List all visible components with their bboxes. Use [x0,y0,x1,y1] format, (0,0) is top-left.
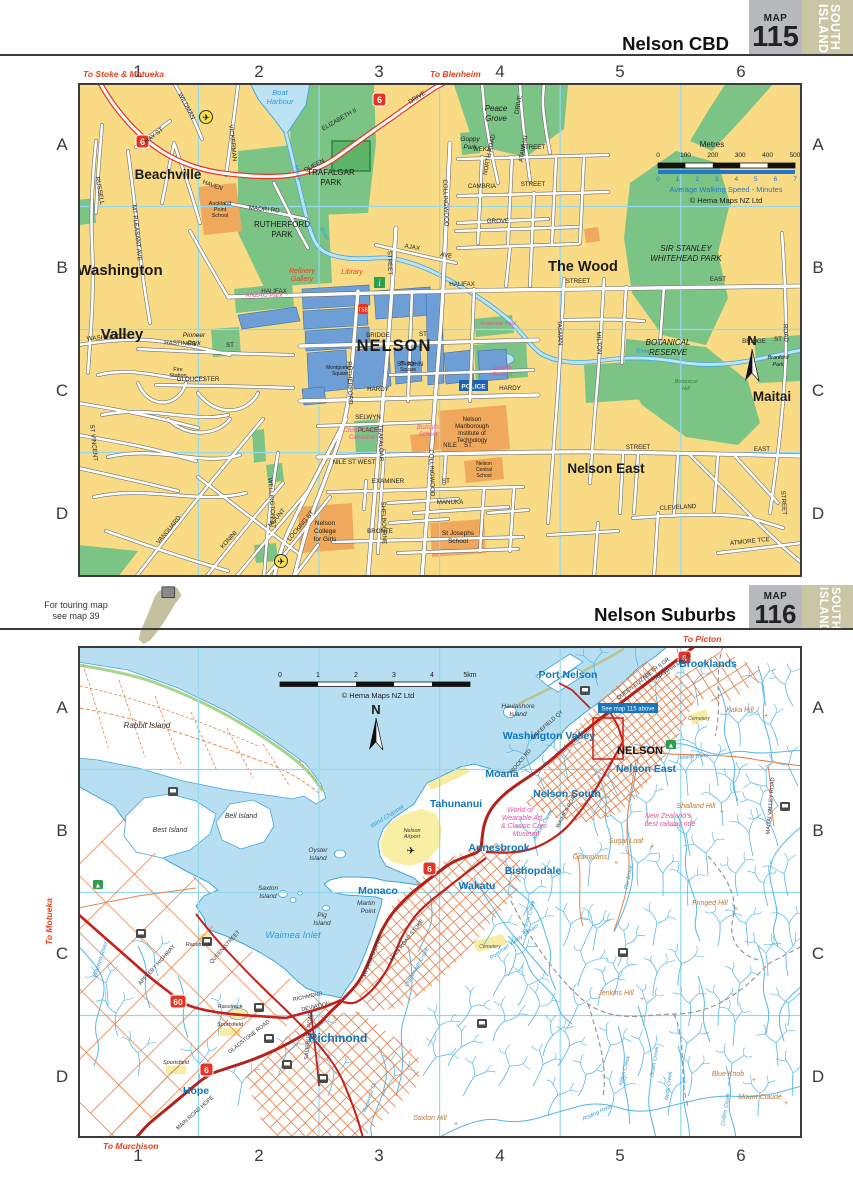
svg-text:Sportsfield: Sportsfield [217,1022,244,1028]
svg-text:PARK: PARK [271,230,293,239]
svg-text:MILTON: MILTON [595,331,603,354]
svg-text:Library: Library [341,269,363,276]
svg-text:St Josephs: St Josephs [442,530,475,537]
svg-text:1: 1 [676,176,680,183]
svg-text:Peace: Peace [485,104,508,113]
svg-text:Station: Station [169,373,186,379]
svg-text:✈: ✈ [202,113,210,123]
svg-text:RESERVE: RESERVE [649,348,688,357]
svg-text:EAST: EAST [754,446,770,453]
svg-text:Goppy: Goppy [460,136,480,143]
svg-text:NELSON: NELSON [617,745,663,757]
svg-text:Nelson: Nelson [463,417,482,423]
svg-text:Grove: Grove [485,114,507,123]
svg-text:Waimea Inlet: Waimea Inlet [265,930,321,941]
svg-text:Gardens: Gardens [491,372,512,378]
svg-text:Cemetery: Cemetery [688,716,710,722]
svg-text:Island: Island [309,855,327,862]
svg-text:Nelson East: Nelson East [616,763,677,775]
svg-text:Square: Square [332,371,348,377]
svg-text:6: 6 [377,95,382,105]
svg-text:Bishop's: Bishop's [417,425,440,431]
svg-text:TASMAN: TASMAN [556,320,564,346]
svg-text:Maitai: Maitai [753,389,791,404]
svg-text:Nelson: Nelson [315,520,336,527]
svg-text:ANZAC Park: ANZAC Park [244,292,283,299]
svg-text:▲: ▲ [95,883,102,890]
svg-text:Washington: Washington [78,262,163,279]
svg-text:NILE ST WEST: NILE ST WEST [333,459,376,466]
svg-text:N: N [747,333,756,348]
svg-text:School: School [476,473,491,479]
svg-text:College: College [314,528,336,535]
svg-text:Oyster: Oyster [308,847,328,854]
svg-text:Wearable Art: Wearable Art [502,815,544,822]
svg-text:7: 7 [793,176,797,183]
svg-text:4: 4 [734,176,738,183]
svg-text:World of: World of [507,807,534,814]
svg-text:Nelson East: Nelson East [567,461,645,476]
svg-text:Airport: Airport [403,834,421,840]
svg-text:Jenkins Hill: Jenkins Hill [597,990,634,997]
svg-text:BRIDGE: BRIDGE [366,332,390,339]
svg-text:Square: Square [400,367,416,373]
svg-text:Riverside Pool: Riverside Pool [480,321,516,327]
svg-text:RUTHERFORD: RUTHERFORD [254,220,310,229]
svg-text:HALIFAX: HALIFAX [449,281,474,288]
svg-text:5: 5 [754,176,758,183]
svg-text:Pioneer: Pioneer [183,332,206,339]
svg-text:STREET: STREET [566,278,591,285]
svg-text:Kaka Hill: Kaka Hill [726,707,754,714]
svg-text:ST: ST [442,478,450,485]
svg-text:+: + [614,860,618,867]
svg-text:+: + [734,906,738,913]
svg-text:Institute of: Institute of [458,431,486,437]
svg-text:N: N [371,702,380,717]
svg-text:Richmond: Richmond [309,1031,368,1045]
svg-text:+: + [650,844,654,851]
svg-text:Marlborough: Marlborough [455,424,489,430]
svg-text:2: 2 [695,176,699,183]
svg-text:Mount Claude: Mount Claude [738,1094,782,1101]
svg-text:Annesbrook: Annesbrook [468,842,529,854]
svg-text:200: 200 [707,152,718,159]
svg-text:Racetrack: Racetrack [218,1004,243,1010]
svg-text:▲: ▲ [668,743,675,750]
svg-text:Museum: Museum [513,831,540,838]
svg-text:MANUKA: MANUKA [437,499,464,506]
svg-text:0: 0 [656,176,660,183]
svg-text:+: + [640,996,644,1003]
svg-text:EAST: EAST [710,276,726,283]
svg-text:5km: 5km [463,672,476,679]
svg-text:Blue Knob: Blue Knob [712,1071,744,1078]
svg-text:Branford: Branford [767,355,789,361]
svg-text:Point: Point [361,908,377,915]
svg-text:PARK: PARK [320,178,342,187]
svg-text:3: 3 [392,672,396,679]
svg-text:for Girls: for Girls [314,536,338,543]
svg-text:STREET: STREET [626,444,651,451]
svg-text:Martin: Martin [357,900,375,907]
svg-text:300: 300 [735,152,746,159]
svg-text:Best Island: Best Island [153,827,189,834]
svg-text:School: School [212,213,229,219]
svg-text:TSB: TSB [358,308,368,314]
svg-text:Grampians: Grampians [573,854,608,861]
svg-text:See map 115 above: See map 115 above [601,707,655,713]
svg-text:+: + [752,1077,756,1084]
svg-text:400: 400 [762,152,773,159]
svg-text:POLICE: POLICE [461,384,486,391]
svg-text:ROAD: ROAD [781,324,789,343]
svg-text:500: 500 [790,152,801,159]
svg-text:Island: Island [259,893,277,900]
svg-text:Saxton: Saxton [258,885,279,892]
svg-text:✈: ✈ [277,557,285,567]
svg-text:NELSON: NELSON [357,337,432,355]
svg-text:Gallery: Gallery [291,276,314,283]
svg-text:+: + [764,713,768,720]
svg-text:60: 60 [173,997,183,1007]
svg-text:Wakatu: Wakatu [459,880,496,892]
svg-text:3: 3 [715,176,719,183]
svg-text:✈: ✈ [407,846,415,857]
svg-text:0: 0 [656,152,660,159]
svg-text:STREET: STREET [521,181,546,188]
svg-text:Beachville: Beachville [135,167,202,182]
svg-text:School: School [419,432,438,438]
svg-text:© Hema Maps NZ Ltd: © Hema Maps NZ Ltd [690,196,763,205]
svg-text:+: + [454,1121,458,1128]
svg-text:Racetrack: Racetrack [186,942,211,948]
svg-text:Fringed Hill: Fringed Hill [692,900,728,907]
svg-text:Park: Park [772,362,784,368]
svg-text:Shalland Hill: Shalland Hill [677,803,716,810]
svg-text:BOTANICAL: BOTANICAL [646,338,691,347]
svg-text:Refinery: Refinery [289,268,316,275]
svg-text:Hill: Hill [682,386,690,392]
svg-text:Haulashore: Haulashore [501,703,535,710]
svg-text:Hope: Hope [183,1085,209,1097]
svg-text:CAMBRIA: CAMBRIA [468,183,497,190]
svg-text:SHELBOURNE: SHELBOURNE [379,502,387,545]
svg-text:Bishopdale: Bishopdale [505,865,562,877]
svg-text:best railway ride: best railway ride [645,821,696,828]
svg-text:ST: ST [774,336,782,343]
svg-text:ST: ST [226,342,234,349]
svg-text:Pig: Pig [317,912,327,919]
svg-text:Average Walking Speed - Minute: Average Walking Speed - Minutes [670,185,783,194]
svg-text:6: 6 [204,1065,209,1075]
svg-text:Port Nelson: Port Nelson [539,669,598,681]
svg-text:Monaco: Monaco [358,885,398,897]
svg-text:SELWYN: SELWYN [355,414,381,421]
svg-text:& Classic Cars: & Classic Cars [501,823,547,830]
svg-text:+: + [784,1100,788,1107]
svg-text:Christ Church: Christ Church [344,428,381,434]
svg-text:100: 100 [680,152,691,159]
svg-text:Nelson South: Nelson South [533,788,601,800]
svg-text:Harbour: Harbour [266,97,294,106]
svg-text:GROVE: GROVE [487,218,509,225]
svg-text:The Wood: The Wood [548,259,618,275]
svg-text:© Hema Maps NZ Ltd: © Hema Maps NZ Ltd [342,691,415,700]
svg-text:Washington Valley: Washington Valley [503,730,596,742]
svg-text:Sportsfield: Sportsfield [163,1060,190,1066]
svg-text:ST: ST [419,331,427,338]
svg-text:6: 6 [774,176,778,183]
svg-text:4: 4 [430,672,434,679]
svg-text:HARDY: HARDY [499,385,521,392]
svg-text:School: School [448,538,468,545]
svg-text:0: 0 [278,672,282,679]
svg-text:BRONTE: BRONTE [367,528,393,535]
svg-text:Technology: Technology [457,438,487,444]
svg-text:Queens: Queens [492,365,512,371]
svg-text:Island: Island [509,711,527,718]
svg-text:WHITEHEAD PARK: WHITEHEAD PARK [650,254,722,263]
svg-text:Botanical: Botanical [675,379,698,385]
svg-text:NILE: NILE [443,442,457,449]
svg-text:Tahunanui: Tahunanui [430,798,482,810]
svg-text:Rabbit Island: Rabbit Island [124,721,171,730]
svg-text:HASTINGS: HASTINGS [164,339,196,347]
svg-text:New Zealand's: New Zealand's [645,813,692,820]
svg-text:6: 6 [427,864,432,874]
svg-text:EXAMINER: EXAMINER [372,478,405,485]
svg-text:SIR STANLEY: SIR STANLEY [660,244,712,253]
svg-text:Metres: Metres [700,140,724,149]
svg-text:Bell Island: Bell Island [225,813,258,820]
svg-text:HARDY: HARDY [367,386,389,393]
svg-text:Saxton Hill: Saxton Hill [413,1115,447,1122]
svg-text:STREET: STREET [386,251,394,276]
svg-text:River: River [636,349,651,355]
svg-text:Cemetery: Cemetery [479,944,501,950]
svg-text:Sugar Loaf: Sugar Loaf [609,838,644,845]
svg-text:+: + [720,809,724,816]
svg-text:Island: Island [313,920,331,927]
svg-text:Boat: Boat [272,88,288,97]
svg-text:Cathedral: Cathedral [349,435,376,441]
svg-text:2: 2 [354,672,358,679]
svg-text:1: 1 [316,672,320,679]
